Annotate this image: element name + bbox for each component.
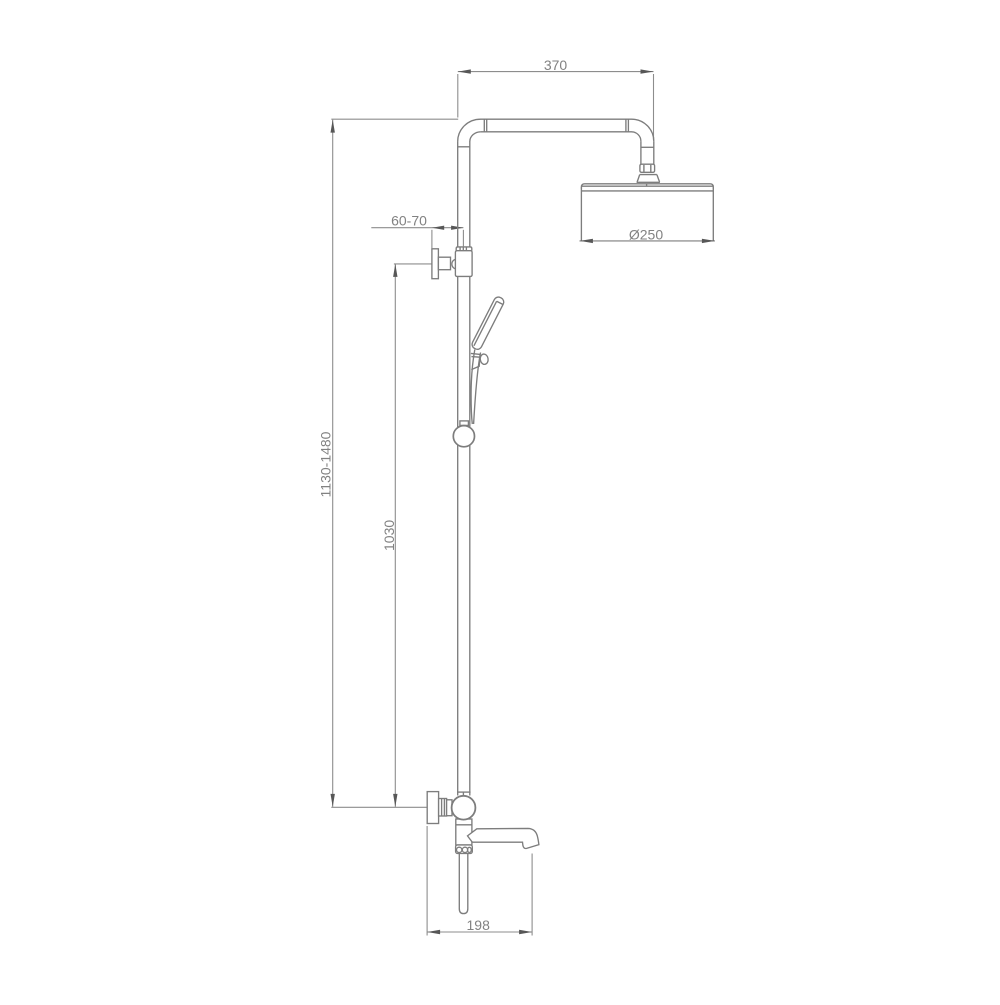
svg-text:370: 370 [544,57,568,73]
svg-text:60-70: 60-70 [391,213,427,229]
svg-text:198: 198 [467,917,491,933]
svg-text:Ø250: Ø250 [629,226,663,242]
svg-text:1130-1480: 1130-1480 [317,431,333,497]
svg-text:1030: 1030 [381,520,397,551]
